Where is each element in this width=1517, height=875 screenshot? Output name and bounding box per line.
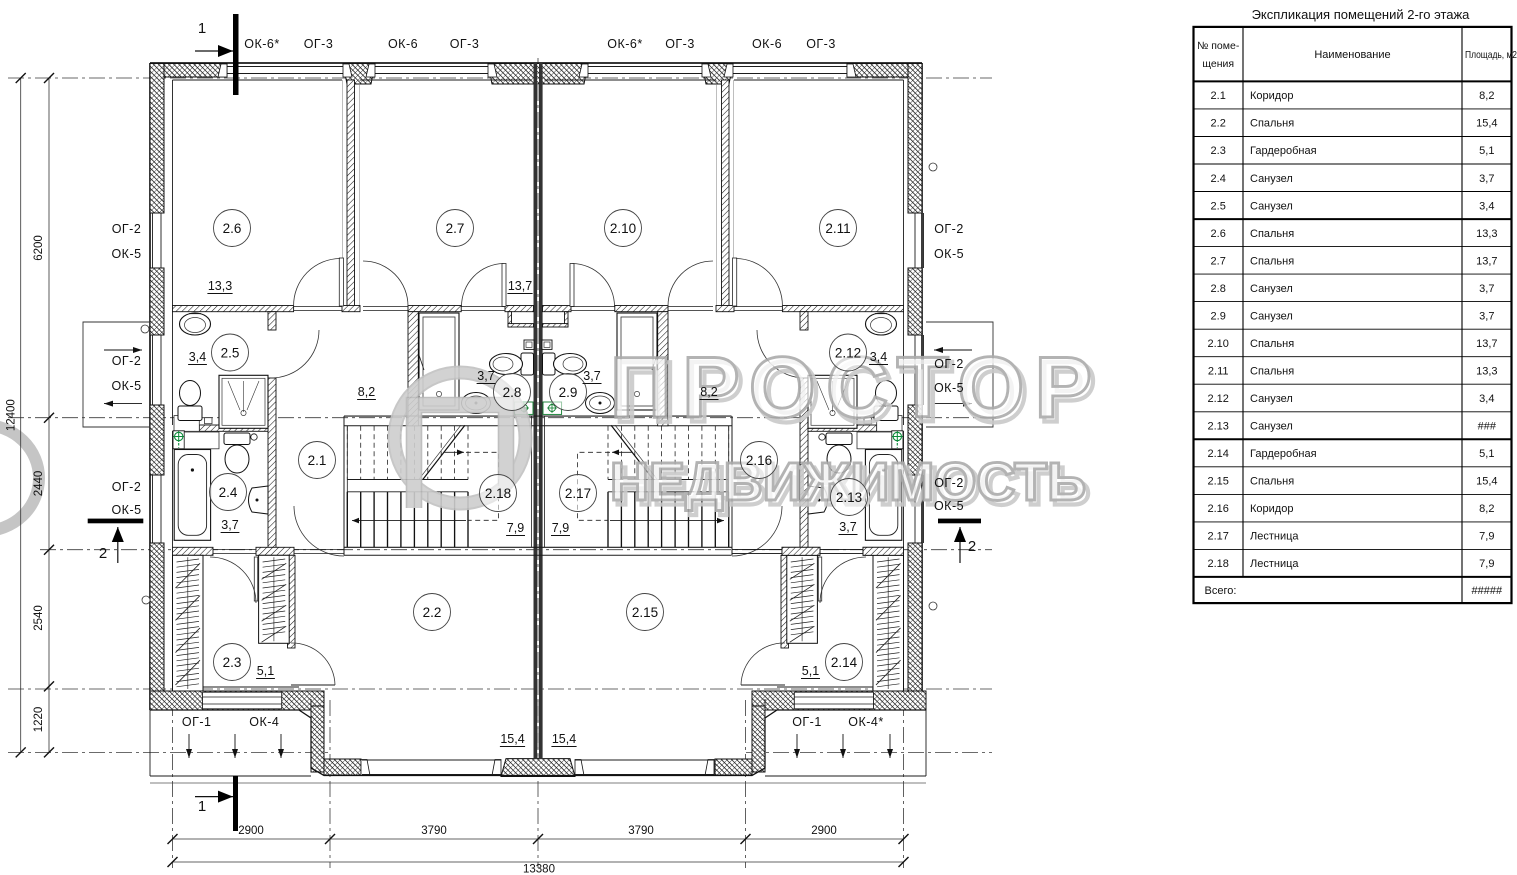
svg-text:Гардеробная: Гардеробная (1250, 145, 1317, 157)
svg-text:Коридор: Коридор (1250, 90, 1293, 102)
svg-text:щения: щения (1202, 58, 1234, 70)
svg-text:ОК-5: ОК-5 (111, 503, 141, 517)
svg-text:ОК-4: ОК-4 (249, 715, 279, 729)
svg-text:ОГ-2: ОГ-2 (934, 222, 964, 236)
svg-text:ОК-6: ОК-6 (752, 37, 782, 51)
svg-text:Площадь, м2: Площадь, м2 (1465, 50, 1517, 61)
svg-text:2.4: 2.4 (1211, 173, 1226, 185)
svg-text:2.17: 2.17 (565, 486, 591, 501)
svg-text:Санузел: Санузел (1250, 200, 1293, 212)
svg-text:ОГ-2: ОГ-2 (112, 480, 142, 494)
svg-text:13,3: 13,3 (1476, 228, 1497, 240)
svg-text:13,3: 13,3 (208, 279, 232, 293)
svg-text:5,1: 5,1 (802, 664, 819, 678)
svg-text:ОК-6*: ОК-6* (607, 37, 642, 51)
svg-text:3,7: 3,7 (477, 369, 494, 383)
svg-text:№ поме-: № поме- (1197, 40, 1240, 52)
svg-text:2.13: 2.13 (836, 490, 862, 505)
svg-text:7,9: 7,9 (552, 521, 569, 535)
svg-text:3,7: 3,7 (583, 369, 600, 383)
svg-text:3,4: 3,4 (1479, 200, 1494, 212)
svg-text:3,7: 3,7 (1479, 310, 1494, 322)
svg-text:2900: 2900 (238, 825, 264, 837)
svg-text:2.9: 2.9 (1211, 310, 1226, 322)
svg-text:3,7: 3,7 (1479, 173, 1494, 185)
svg-text:3,4: 3,4 (1479, 393, 1494, 405)
svg-text:2.5: 2.5 (221, 345, 240, 360)
svg-text:Спальня: Спальня (1250, 255, 1294, 267)
svg-text:13,7: 13,7 (508, 279, 532, 293)
svg-text:ОГ-2: ОГ-2 (112, 222, 142, 236)
svg-text:2.13: 2.13 (1207, 421, 1228, 433)
svg-text:5,1: 5,1 (1479, 145, 1494, 157)
svg-text:2.8: 2.8 (1211, 283, 1226, 295)
svg-text:ОГ-3: ОГ-3 (806, 37, 836, 51)
svg-text:7,9: 7,9 (1479, 558, 1494, 570)
svg-text:Коридор: Коридор (1250, 503, 1293, 515)
svg-text:15,4: 15,4 (1476, 118, 1497, 130)
svg-text:2: 2 (968, 538, 976, 555)
svg-text:3,7: 3,7 (221, 518, 238, 532)
svg-text:Спальня: Спальня (1250, 228, 1294, 240)
svg-text:Гардеробная: Гардеробная (1250, 448, 1317, 460)
svg-text:2.4: 2.4 (219, 485, 238, 500)
svg-text:2.16: 2.16 (1207, 503, 1228, 515)
svg-text:3,4: 3,4 (189, 350, 206, 364)
svg-text:3,7: 3,7 (1479, 283, 1494, 295)
svg-text:2.18: 2.18 (1207, 558, 1228, 570)
svg-text:ОГ-1: ОГ-1 (182, 715, 212, 729)
svg-text:2.18: 2.18 (485, 486, 511, 501)
svg-text:ОК-6: ОК-6 (388, 37, 418, 51)
svg-text:13,7: 13,7 (1476, 338, 1497, 350)
svg-text:3790: 3790 (421, 825, 447, 837)
svg-text:ОК-5: ОК-5 (111, 247, 141, 261)
svg-text:3,4: 3,4 (870, 350, 887, 364)
svg-text:#####: ##### (1472, 585, 1503, 597)
svg-text:ОК-5: ОК-5 (111, 379, 141, 393)
svg-text:Экспликация помещений 2-го эта: Экспликация помещений 2-го этажа (1252, 7, 1471, 22)
svg-text:2.17: 2.17 (1207, 531, 1228, 543)
svg-text:2.10: 2.10 (1207, 338, 1228, 350)
svg-text:Спальня: Спальня (1250, 338, 1294, 350)
svg-text:8,2: 8,2 (700, 385, 717, 399)
svg-text:Всего:: Всего: (1205, 585, 1237, 597)
svg-text:3,7: 3,7 (839, 520, 856, 534)
svg-text:2.10: 2.10 (610, 221, 636, 236)
svg-text:2.3: 2.3 (1211, 145, 1226, 157)
svg-text:2.11: 2.11 (1208, 366, 1229, 378)
svg-text:2.9: 2.9 (559, 385, 578, 400)
svg-text:15,4: 15,4 (1476, 476, 1497, 488)
svg-text:13,7: 13,7 (1476, 255, 1497, 267)
svg-text:###: ### (1478, 421, 1497, 433)
svg-text:5,1: 5,1 (257, 664, 274, 678)
svg-text:ОГ-2: ОГ-2 (934, 357, 964, 371)
svg-text:15,4: 15,4 (500, 732, 524, 746)
svg-text:2.14: 2.14 (1207, 448, 1228, 460)
svg-text:ОГ-3: ОГ-3 (304, 37, 334, 51)
svg-text:ОГ-1: ОГ-1 (792, 715, 822, 729)
svg-text:Лестница: Лестница (1250, 558, 1299, 570)
svg-text:1: 1 (198, 798, 206, 815)
svg-text:Спальня: Спальня (1250, 118, 1294, 130)
svg-text:2.7: 2.7 (446, 221, 465, 236)
svg-text:1: 1 (198, 20, 206, 37)
svg-text:2540: 2540 (33, 605, 45, 631)
svg-text:2.7: 2.7 (1211, 255, 1226, 267)
svg-text:ОГ-3: ОГ-3 (665, 37, 695, 51)
svg-text:ОГ-3: ОГ-3 (450, 37, 480, 51)
svg-text:2440: 2440 (33, 471, 45, 497)
svg-text:2.6: 2.6 (1211, 228, 1226, 240)
svg-text:2.3: 2.3 (223, 655, 242, 670)
svg-text:2.2: 2.2 (423, 605, 442, 620)
svg-text:Санузел: Санузел (1250, 283, 1293, 295)
svg-text:2.11: 2.11 (825, 221, 850, 236)
svg-text:Санузел: Санузел (1250, 421, 1293, 433)
svg-text:8,2: 8,2 (1479, 503, 1494, 515)
svg-text:Спальня: Спальня (1250, 476, 1294, 488)
svg-text:8,2: 8,2 (1479, 90, 1494, 102)
svg-text:ОГ-2: ОГ-2 (934, 476, 964, 490)
svg-text:ОК-4*: ОК-4* (848, 715, 883, 729)
svg-text:Лестница: Лестница (1250, 531, 1299, 543)
svg-text:15,4: 15,4 (552, 732, 576, 746)
svg-text:5,1: 5,1 (1479, 448, 1494, 460)
svg-text:8,2: 8,2 (358, 385, 375, 399)
svg-text:2900: 2900 (811, 825, 837, 837)
svg-text:2.8: 2.8 (503, 385, 522, 400)
svg-text:Наименование: Наименование (1314, 49, 1390, 61)
svg-text:ОК-5: ОК-5 (934, 247, 964, 261)
svg-text:1220: 1220 (33, 707, 45, 733)
svg-text:2.1: 2.1 (1211, 90, 1226, 102)
svg-text:2: 2 (99, 545, 107, 562)
svg-text:2.12: 2.12 (835, 345, 861, 360)
svg-text:ОК-5: ОК-5 (934, 499, 964, 513)
svg-text:2.6: 2.6 (223, 221, 242, 236)
svg-text:ОК-6*: ОК-6* (244, 37, 279, 51)
svg-text:3790: 3790 (628, 825, 654, 837)
svg-text:Санузел: Санузел (1250, 310, 1293, 322)
svg-text:7,9: 7,9 (1479, 531, 1494, 543)
svg-text:2.16: 2.16 (746, 453, 772, 468)
svg-text:ОК-5: ОК-5 (934, 381, 964, 395)
svg-text:7,9: 7,9 (507, 521, 524, 535)
svg-text:Санузел: Санузел (1250, 393, 1293, 405)
svg-text:2.2: 2.2 (1211, 118, 1226, 130)
svg-text:ОГ-2: ОГ-2 (112, 354, 142, 368)
svg-text:2.14: 2.14 (831, 655, 858, 670)
svg-text:2.15: 2.15 (632, 605, 658, 620)
svg-text:13,3: 13,3 (1476, 366, 1497, 378)
svg-text:Санузел: Санузел (1250, 173, 1293, 185)
svg-text:2.5: 2.5 (1211, 200, 1226, 212)
svg-text:2.12: 2.12 (1207, 393, 1228, 405)
svg-text:Спальня: Спальня (1250, 366, 1294, 378)
svg-text:2.15: 2.15 (1207, 476, 1228, 488)
svg-text:13380: 13380 (523, 864, 555, 875)
svg-text:12400: 12400 (6, 399, 18, 431)
svg-text:2.1: 2.1 (308, 453, 327, 468)
svg-text:6200: 6200 (33, 235, 45, 261)
